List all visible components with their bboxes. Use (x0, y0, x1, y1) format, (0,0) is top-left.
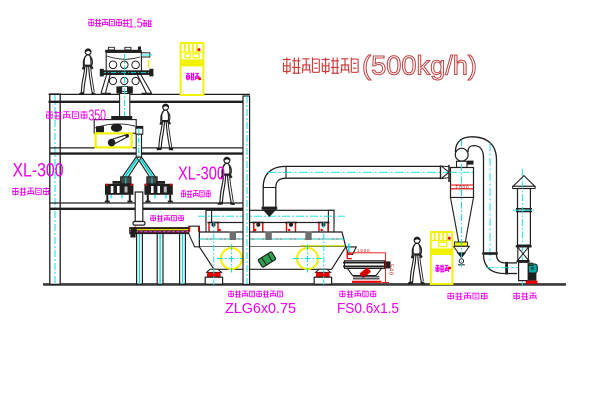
svg-text:(500kg/h): (500kg/h) (362, 51, 477, 81)
svg-text:1500: 1500 (357, 248, 370, 253)
svg-text:XL-300: XL-300 (13, 161, 64, 182)
svg-text:FS0.6x1.5: FS0.6x1.5 (337, 300, 399, 317)
svg-text:350: 350 (89, 108, 107, 125)
svg-text:F600: F600 (456, 184, 469, 189)
svg-text:540: 540 (388, 264, 394, 275)
svg-text:XL-300: XL-300 (178, 164, 225, 184)
svg-text:ZLG6x0.75: ZLG6x0.75 (225, 300, 296, 317)
svg-text:1.5: 1.5 (128, 16, 143, 31)
